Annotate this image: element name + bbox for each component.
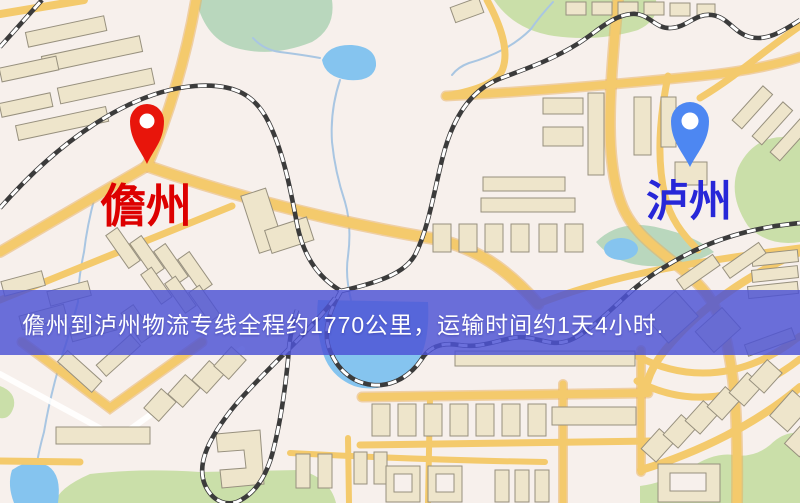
route-info-banner: 儋州到泸州物流专线全程约1770公里，运输时间约1天4小时. bbox=[0, 290, 800, 355]
destination-label: 泸州 bbox=[646, 178, 732, 226]
logistics-route-map: 儋州 泸州 儋州到泸州物流专线全程约1770公里，运输时间约1天4小时. bbox=[0, 0, 800, 503]
origin-label: 儋州 bbox=[100, 180, 192, 232]
map-image: 儋州 泸州 bbox=[0, 0, 800, 503]
route-info-text: 儋州到泸州物流专线全程约1770公里，运输时间约1天4小时. bbox=[0, 306, 664, 340]
